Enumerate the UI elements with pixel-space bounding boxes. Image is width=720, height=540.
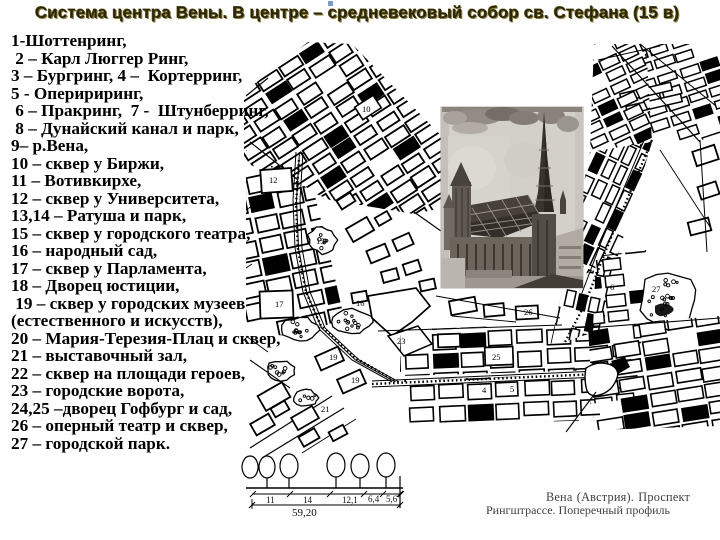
svg-text:21: 21	[321, 404, 330, 414]
svg-text:59,20: 59,20	[292, 507, 317, 519]
svg-text:12,1: 12,1	[342, 495, 358, 505]
svg-text:19: 19	[329, 352, 338, 362]
svg-text:5,6: 5,6	[386, 494, 398, 504]
svg-text:14: 14	[303, 495, 313, 505]
svg-text:23: 23	[397, 336, 406, 346]
svg-text:10: 10	[362, 104, 371, 114]
svg-text:27: 27	[652, 284, 661, 294]
svg-text:25: 25	[492, 352, 501, 362]
svg-text:15: 15	[316, 236, 325, 246]
svg-text:5: 5	[510, 384, 514, 394]
svg-text:19: 19	[351, 375, 360, 385]
svg-text:6,4: 6,4	[368, 494, 380, 504]
svg-text:6: 6	[610, 282, 614, 292]
svg-text:11: 11	[266, 495, 275, 505]
svg-text:16: 16	[356, 298, 365, 308]
